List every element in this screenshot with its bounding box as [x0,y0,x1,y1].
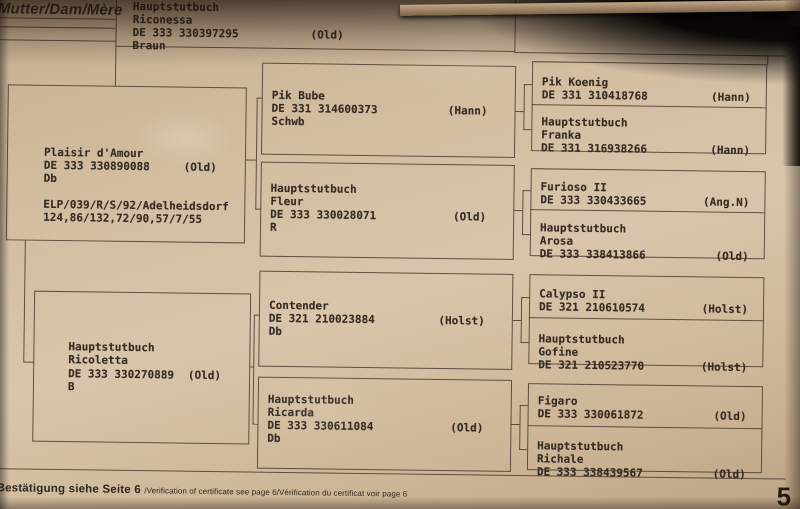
pedigree-content: Mutter/Dam/Mère Hauptstutbuch Riconessa … [0,0,800,509]
row-line [0,39,115,42]
brand-line: Schwb [271,115,508,131]
connector-line [524,84,532,85]
studbook-abbr: (Old) [310,28,343,41]
studbook-abbr: (Holst) [702,302,749,316]
pedigree-box-fleur: Hauptstutbuch Fleur DE 333 330028071(Old… [260,162,515,260]
horse-name: Ricoletta [68,353,243,368]
connector-line [252,315,254,425]
studbook-abbr: (Old) [713,410,746,423]
connector-line [519,405,521,450]
row-line [0,26,116,29]
connector-line [521,297,523,343]
pedigree-pair-3: Calypso II DE 321 210610574(Holst) Haupt… [528,274,764,367]
connector-line [513,320,521,321]
connector-line [255,98,257,210]
reg-number: DE 331 316938266 [541,141,647,155]
section-label-dam: Mutter/Dam/Mère [0,0,123,19]
studbook-abbr: (Holst) [701,360,748,374]
page-number: 5 [776,481,791,509]
connector-line [523,129,531,130]
reg-line: DE 333 330433665(Ang.N) [540,193,758,209]
photographed-pedigree-page: Mutter/Dam/Mère Hauptstutbuch Riconessa … [0,0,800,509]
connector-line [522,234,530,235]
studbook-abbr: (Hann) [710,144,750,158]
studbook-abbr: (Hann) [448,104,488,118]
connector-line [254,315,260,316]
connector-line [519,449,527,450]
connector-line [23,362,34,363]
connector-line [523,190,531,191]
reg-number: DE 333 338413866 [540,247,646,261]
connector-line [521,297,529,298]
connector-line [255,209,261,210]
reg-line: DE 321 210610574(Holst) [539,300,757,316]
connector-line [23,241,26,362]
confirmation-text-german: Bestätigung siehe Seite 6 [0,482,144,496]
connector-line [514,210,522,211]
reg-number: DE 333 330061872 [538,407,644,421]
connector-line [252,424,258,425]
row-line [514,52,785,57]
brand-line: Db [267,432,504,448]
studbook-abbr: (Old) [184,161,217,174]
pedigree-box-dam-sire: Plaisir d'Amour DE 333 330890088(Old) Db… [6,84,247,243]
studbook-abbr: (Hann) [711,91,751,105]
pedigree-pair-1: Pik Koenig DE 331 310418768(Hann) Haupts… [531,61,767,154]
studbook-abbr: (Old) [188,369,221,382]
studbook-abbr: (Old) [713,468,746,481]
studbook-abbr: (Old) [450,421,483,434]
reg-line: DE 333 338439567(Old) [537,465,755,481]
pedigree-box-ricarda: Hauptstutbuch Ricarda DE 333 330611084(O… [257,377,512,472]
reg-number: DE 321 210523770 [538,358,644,372]
reg-line: DE 333 330061872(Old) [538,407,756,423]
connector-line [522,190,524,235]
reg-line: DE 333 338413866(Old) [540,247,758,263]
reg-line: DE 321 210523770(Holst) [538,358,756,374]
paper-sheet: Mutter/Dam/Mère Hauptstutbuch Riconessa … [0,0,800,509]
connector-line [521,342,529,343]
brand-line: R [270,221,507,237]
studbook-abbr: (Old) [453,210,486,223]
pedigree-pair-2: Furioso II DE 333 330433665(Ang.N) Haupt… [530,168,766,259]
confirmation-text-translations: /Verification of certificate see page 6/… [144,486,407,498]
reg-number: DE 321 210610574 [539,300,645,314]
reg-number: DE 333 330433665 [540,193,646,207]
pedigree-pair-4: Figaro DE 333 330061872(Old) Hauptstutbu… [527,383,763,473]
connector-line [511,424,519,425]
studbook-abbr: (Holst) [438,314,485,328]
reg-number: DE 333 338439567 [537,465,643,479]
connector-line [523,84,525,130]
pedigree-box-dam-dam: Hauptstutbuch Ricoletta DE 333 330270889… [32,291,251,445]
connector-line [115,47,117,86]
row-line [0,17,116,20]
reg-line: DE 331 310418768(Hann) [542,88,760,104]
connector-line [257,98,263,99]
connector-line [520,405,528,406]
studbook-abbr: (Ang.N) [703,195,750,209]
brand-line: Db [269,325,506,341]
pedigree-box-contender: Contender DE 321 210023884(Holst) Db [258,271,513,370]
studbook-abbr: (Old) [715,250,748,263]
performance-line: 124,86/132,72/90,57/7/55 [43,211,238,227]
pedigree-box-pik-bube: Pik Bube DE 331 314600373(Hann) Schwb [261,63,516,158]
brand-line: B [68,380,243,395]
column-line [767,55,768,65]
connector-line [516,111,524,112]
brand-line: Db [44,172,239,188]
reg-number: DE 331 310418768 [542,88,648,102]
pedigree-box-dam: Hauptstutbuch Riconessa DE 333 330397295… [115,0,516,52]
confirmation-text: Bestätigung siehe Seite 6 /Verification … [0,482,407,499]
reg-line: DE 331 316938266(Hann) [541,141,759,157]
connector-line [246,159,256,160]
